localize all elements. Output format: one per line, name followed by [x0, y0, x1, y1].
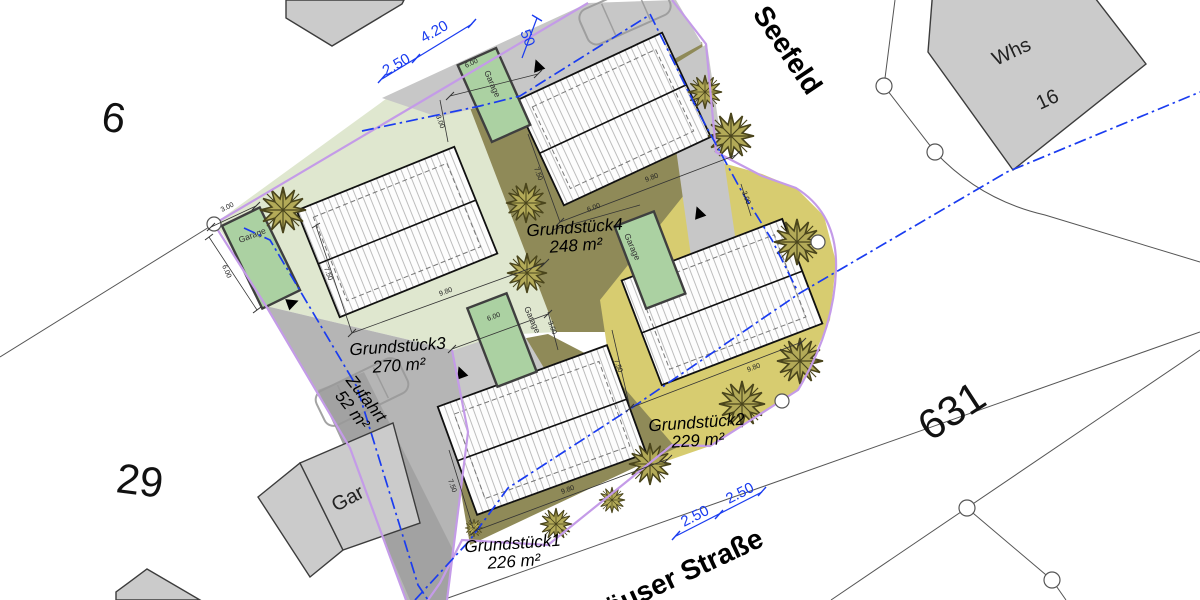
dim-garage-a-600: 6.00	[220, 264, 232, 279]
dim-420-top: 4.20	[418, 17, 452, 46]
plot-label-grundstueck1: Grundstück1 226 m²	[464, 531, 563, 575]
svg-text:270 m²: 270 m²	[371, 354, 427, 377]
street-label-seefeld: Seefeld	[747, 0, 828, 100]
dim-250-top: 2.50	[380, 50, 414, 79]
building-corner	[116, 569, 200, 600]
site-plan: Garage Garage Garage Garage	[0, 0, 1200, 600]
parcel-631: 631	[909, 372, 993, 450]
svg-text:226 m²: 226 m²	[486, 550, 542, 573]
parcel-29: 29	[114, 454, 166, 506]
svg-text:248 m²: 248 m²	[548, 234, 604, 257]
building-whs	[928, 0, 1146, 170]
parcel-6: 6	[99, 92, 129, 142]
building-topleft	[286, 0, 404, 46]
svg-text:229 m²: 229 m²	[670, 429, 726, 452]
